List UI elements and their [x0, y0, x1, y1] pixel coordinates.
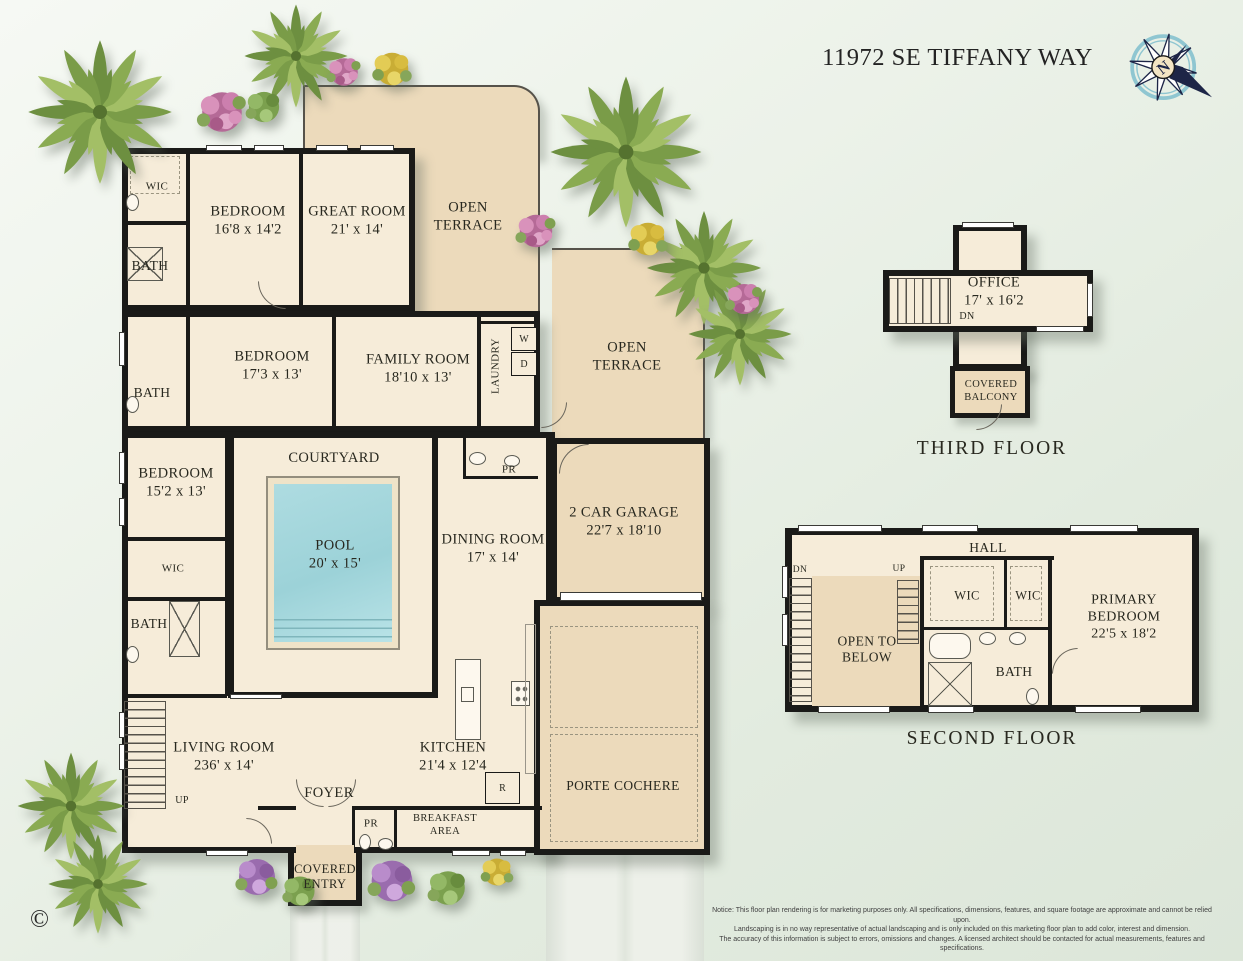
room-label-wic-2: WIC	[162, 562, 185, 575]
dryer-box: D	[511, 352, 537, 376]
room-label-bath-2: BATH	[134, 385, 171, 401]
room-name: BEDROOM	[138, 465, 213, 483]
room-label-courtyard: COURTYARD	[288, 450, 379, 468]
wall	[920, 556, 924, 707]
wall	[1004, 556, 1007, 630]
room-name: BEDROOM	[1088, 608, 1161, 625]
room-name: OPEN	[434, 199, 503, 217]
room-name: ENTRY	[294, 877, 356, 892]
window	[818, 706, 890, 713]
room-name: TERRACE	[593, 357, 662, 375]
notice-label: Notice:	[712, 907, 734, 914]
room-name: KITCHEN	[419, 739, 487, 757]
wall	[186, 150, 190, 309]
room-label-open-to-below: OPEN TO BELOW	[838, 634, 897, 667]
label-stairs-dn-3f: DN	[959, 311, 974, 323]
island-sink	[461, 687, 474, 702]
wall	[258, 806, 296, 810]
flower-bush	[227, 847, 287, 907]
room-name: BEDROOM	[234, 348, 309, 366]
room-label-family-room: FAMILY ROOM 18'10 x 13'	[366, 351, 470, 386]
pool-steps	[274, 612, 392, 640]
window	[928, 706, 974, 713]
window	[360, 145, 394, 151]
flower-bush	[418, 858, 478, 918]
room-name: BALCONY	[964, 392, 1018, 405]
palm-tree	[13, 748, 129, 864]
door-arc	[976, 404, 1002, 430]
wall	[463, 476, 538, 479]
flower-bush	[719, 274, 769, 324]
window	[119, 452, 125, 484]
copyright-symbol: ©	[30, 906, 49, 934]
room-name: TERRACE	[434, 217, 503, 235]
notice-line-1: This floor plan rendering is for marketi…	[736, 907, 1212, 924]
stairs-third-floor	[889, 278, 951, 324]
room-label-porte-cochere: PORTE COCHERE	[566, 778, 680, 794]
room-name: BEDROOM	[210, 203, 285, 221]
floor-plan-canvas: R W D	[0, 0, 1243, 961]
entry-walkway	[290, 904, 360, 961]
room-label-wic-1: WIC	[146, 180, 169, 193]
room-dims: 16'8 x 14'2	[210, 221, 285, 239]
notice-line-2: Landscaping is in no way representative …	[712, 925, 1212, 935]
room-label-open-terrace-2: OPEN TERRACE	[593, 339, 662, 374]
notice-line-3: The accuracy of this information is subj…	[712, 935, 1212, 954]
wall	[479, 321, 536, 324]
room-dims: 21' x 14'	[308, 221, 406, 239]
room-name: GREAT ROOM	[308, 203, 406, 221]
room-label-pr-1: PR	[502, 463, 516, 476]
wall	[124, 221, 188, 225]
room-label-bedroom-2: BEDROOM 17'3 x 13'	[234, 348, 309, 383]
flower-bush	[189, 79, 255, 145]
room-name: DINING ROOM	[441, 531, 544, 549]
room-name: 2 CAR GARAGE	[569, 504, 679, 522]
stairs-living-room	[124, 701, 166, 809]
room-dims: 20' x 15'	[309, 555, 361, 573]
caption-second-floor: SECOND FLOOR	[907, 727, 1078, 751]
window	[922, 525, 978, 532]
window	[500, 850, 526, 856]
toilet	[126, 646, 139, 663]
room-label-primary-bedroom: PRIMARY BEDROOM 22'5 x 18'2	[1088, 591, 1161, 642]
stairs-second-floor-up	[897, 580, 919, 644]
wall	[186, 313, 190, 430]
room-label-bath-2f: BATH	[996, 664, 1033, 680]
room-label-pr-2: PR	[364, 817, 378, 830]
room-name: BELOW	[838, 650, 897, 666]
caption-third-floor: THIRD FLOOR	[917, 437, 1067, 461]
porte-cochere-bay	[550, 626, 698, 728]
wall	[924, 627, 1050, 630]
room-label-covered-balcony: COVERED BALCONY	[964, 379, 1018, 405]
room-dims: 17' x 16'2	[964, 292, 1024, 310]
bathtub	[929, 633, 971, 659]
dryer-label: D	[520, 359, 527, 370]
room-dims: 15'2 x 13'	[138, 483, 213, 501]
room-label-open-terrace-1: OPEN TERRACE	[434, 199, 503, 234]
room-name: FAMILY ROOM	[366, 351, 470, 369]
room-dims: 17' x 14'	[441, 549, 544, 567]
room-label-bath-1: BATH	[132, 258, 169, 274]
room-label-breakfast: BREAKFAST AREA	[413, 813, 477, 839]
room-name: BREAKFAST	[413, 813, 477, 826]
notice-line: Notice: This floor plan rendering is for…	[712, 906, 1212, 925]
room-label-hall: HALL	[969, 540, 1007, 556]
wall	[463, 434, 466, 479]
kitchen-counter	[525, 624, 536, 774]
garage-door	[560, 592, 702, 601]
toilet	[1026, 688, 1039, 705]
window	[962, 222, 1014, 228]
room-name: COVERED	[294, 862, 356, 877]
wall	[225, 434, 229, 696]
wall	[299, 150, 303, 309]
toilet	[359, 834, 371, 850]
label-stairs-up-2f: UP	[893, 564, 906, 576]
wall	[477, 313, 481, 430]
label-stairs-up: UP	[175, 795, 189, 807]
porte-cochere-driveway	[546, 853, 704, 961]
window	[1075, 706, 1141, 713]
washer-box: W	[511, 327, 537, 351]
shower	[928, 662, 972, 706]
window	[452, 850, 490, 856]
room-label-kitchen: KITCHEN 21'4 x 12'4	[419, 739, 487, 774]
window	[782, 614, 788, 646]
room-label-great-room: GREAT ROOM 21' x 14'	[308, 203, 406, 238]
room-name: OFFICE	[964, 274, 1024, 292]
refrigerator-box: R	[485, 772, 520, 804]
shower	[169, 601, 200, 657]
compass-rose-icon: N	[1118, 22, 1214, 116]
wall	[1048, 556, 1052, 707]
flower-bush	[358, 847, 426, 915]
room-dims: 21'4 x 12'4	[419, 757, 487, 775]
window	[798, 525, 882, 532]
room-label-garage: 2 CAR GARAGE 22'7 x 18'10	[569, 504, 679, 539]
room-dims: 17'3 x 13'	[234, 366, 309, 384]
window	[1036, 326, 1084, 332]
window	[1087, 283, 1093, 317]
wall	[394, 806, 397, 849]
sink	[378, 838, 393, 850]
window	[782, 566, 788, 598]
window	[206, 145, 242, 151]
window	[230, 694, 282, 699]
room-label-living-room: LIVING ROOM 236' x 14'	[173, 739, 274, 774]
wall	[124, 694, 227, 698]
refrigerator-label: R	[499, 783, 506, 794]
wall	[332, 313, 336, 430]
washer-label: W	[519, 334, 528, 345]
sink	[979, 632, 996, 645]
room-label-bedroom-3: BEDROOM 15'2 x 13'	[138, 465, 213, 500]
page-title: 11972 SE TIFFANY WAY	[790, 44, 1125, 72]
room-name: OPEN	[593, 339, 662, 357]
wall	[124, 537, 227, 541]
window	[316, 145, 348, 151]
room-dims: 22'5 x 18'2	[1088, 626, 1161, 643]
window	[1070, 525, 1138, 532]
wall	[920, 556, 1054, 560]
room-label-laundry: LAUNDRY	[489, 338, 502, 394]
room-dims: 236' x 14'	[173, 757, 274, 775]
room-dims: 22'7 x 18'10	[569, 522, 679, 540]
room-label-bedroom-1: BEDROOM 16'8 x 14'2	[210, 203, 285, 238]
room-name: POOL	[309, 537, 361, 555]
window	[254, 145, 284, 151]
room-name: OPEN TO	[838, 634, 897, 650]
window	[119, 744, 125, 770]
window	[119, 332, 125, 366]
room-name: AREA	[413, 826, 477, 839]
room-label-foyer: FOYER	[304, 785, 354, 803]
window	[119, 712, 125, 738]
window	[206, 850, 248, 856]
palm-tree	[544, 70, 708, 234]
sink	[1009, 632, 1026, 645]
room-label-dining-room: DINING ROOM 17' x 14'	[441, 531, 544, 566]
label-stairs-dn-2f: DN	[793, 565, 808, 577]
front-door-opening	[296, 845, 354, 855]
room-label-covered-entry: COVERED ENTRY	[294, 862, 356, 893]
toilet	[126, 194, 139, 211]
wall	[352, 806, 355, 849]
flower-bush	[237, 80, 291, 134]
room-name: PRIMARY	[1088, 591, 1161, 608]
wall	[352, 806, 542, 810]
room-name: COVERED	[964, 379, 1018, 392]
stairs-second-floor-dn	[789, 578, 812, 702]
sink	[469, 452, 486, 465]
room-dims: 18'10 x 13'	[366, 369, 470, 387]
room-name: LIVING ROOM	[173, 739, 274, 757]
room-label-wic-a: WIC	[954, 588, 980, 603]
notice-text: Notice: This floor plan rendering is for…	[712, 906, 1212, 954]
wall	[546, 432, 555, 602]
room-label-bath-3: BATH	[131, 616, 168, 632]
room-label-pool: POOL 20' x 15'	[309, 537, 361, 572]
room-label-office: OFFICE 17' x 16'2	[964, 274, 1024, 309]
room-label-wic-b: WIC	[1015, 588, 1041, 603]
window	[119, 498, 125, 526]
